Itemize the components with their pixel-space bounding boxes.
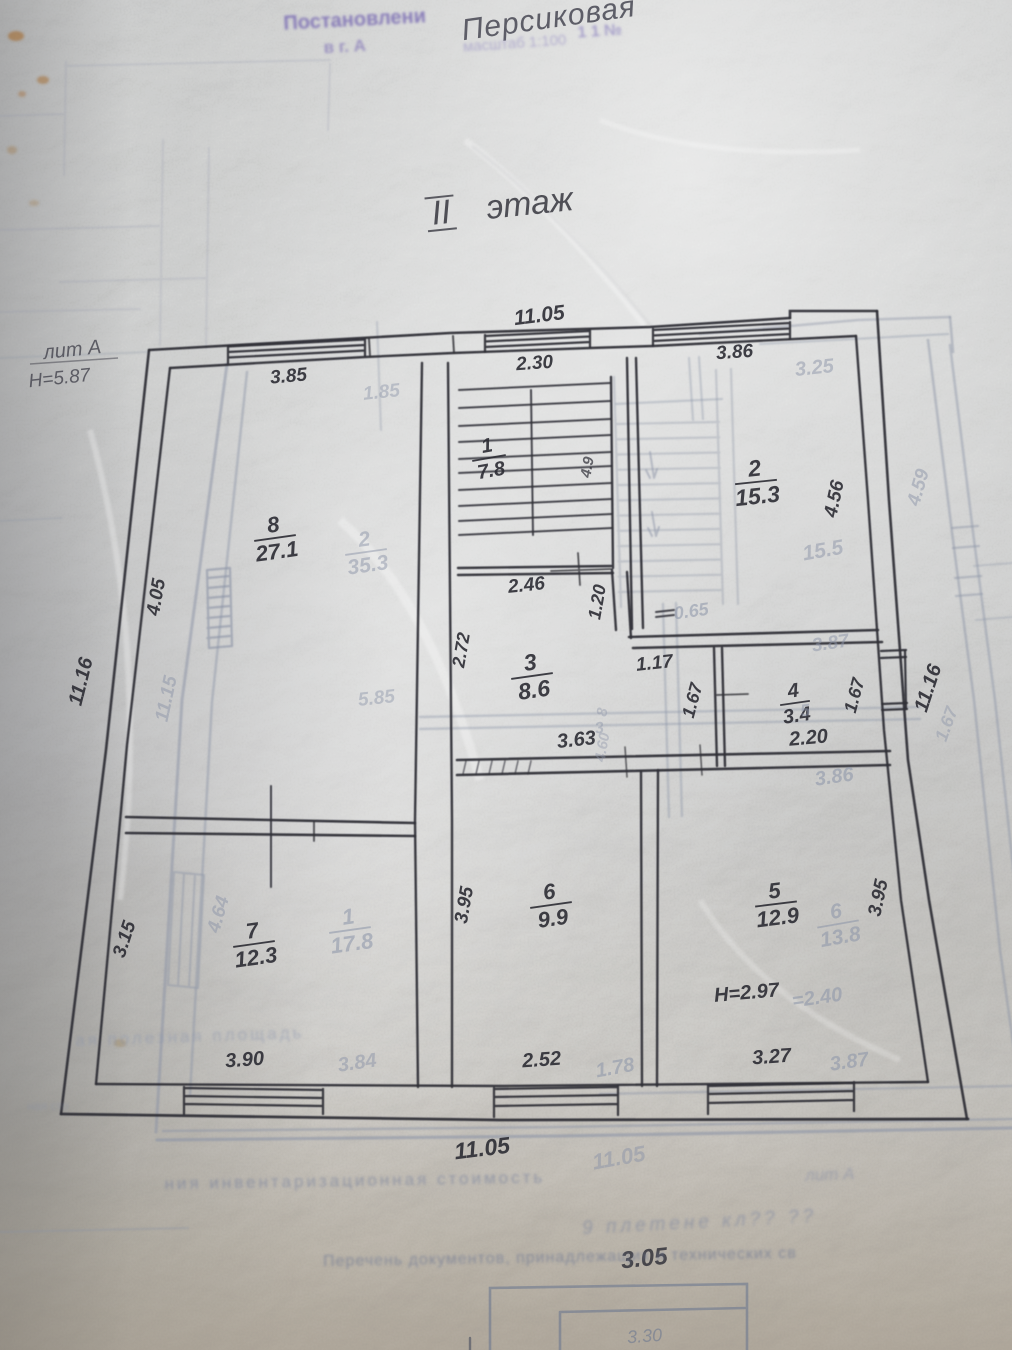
svg-text:1 1 №: 1 1 № — [577, 21, 623, 41]
svg-text:12.9: 12.9 — [755, 902, 801, 932]
svg-text:2.46: 2.46 — [506, 573, 546, 598]
svg-text:15.3: 15.3 — [734, 480, 781, 511]
svg-text:9.9: 9.9 — [536, 904, 571, 933]
svg-text:в г. А: в г. А — [323, 36, 366, 57]
svg-text:3.25: 3.25 — [794, 355, 836, 381]
svg-text:3.86: 3.86 — [715, 341, 754, 365]
svg-text:5.85: 5.85 — [357, 686, 396, 711]
svg-text:1.85: 1.85 — [362, 380, 401, 405]
svg-text:8.6: 8.6 — [516, 675, 551, 705]
svg-text:3.30: 3.30 — [626, 1325, 662, 1347]
svg-text:3.85: 3.85 — [269, 364, 308, 388]
svg-text:3.90: 3.90 — [224, 1048, 264, 1073]
svg-text:3.27: 3.27 — [751, 1045, 792, 1070]
svg-text:лит А: лит А — [804, 1164, 855, 1185]
svg-text:2.30: 2.30 — [514, 352, 554, 376]
svg-text:2.52: 2.52 — [520, 1048, 561, 1073]
svg-text:2.20: 2.20 — [787, 725, 829, 750]
svg-text:2: 2 — [746, 454, 763, 481]
svg-text:1.17: 1.17 — [635, 651, 675, 676]
svg-text:3.63: 3.63 — [556, 727, 597, 753]
svg-text:ная сто: ная сто — [27, 1099, 68, 1113]
